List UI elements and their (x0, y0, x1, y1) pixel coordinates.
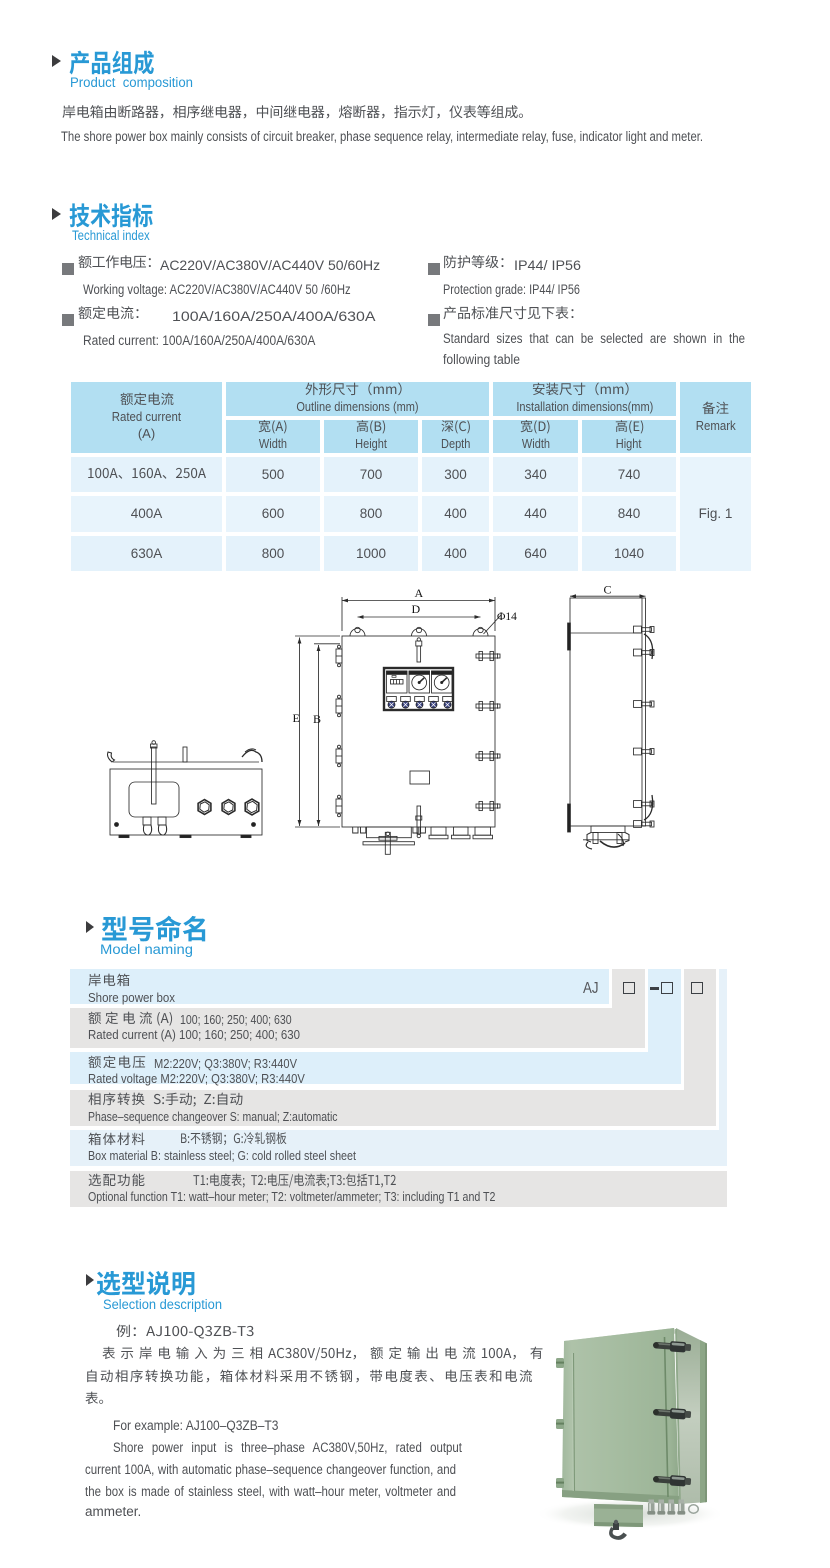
svg-text:Φ14: Φ14 (497, 611, 517, 623)
svg-text:D: D (412, 602, 421, 616)
svg-text:E: E (293, 711, 300, 725)
svg-text:B: B (313, 712, 321, 726)
svg-text:A: A (415, 586, 424, 600)
svg-text:C: C (604, 585, 612, 597)
